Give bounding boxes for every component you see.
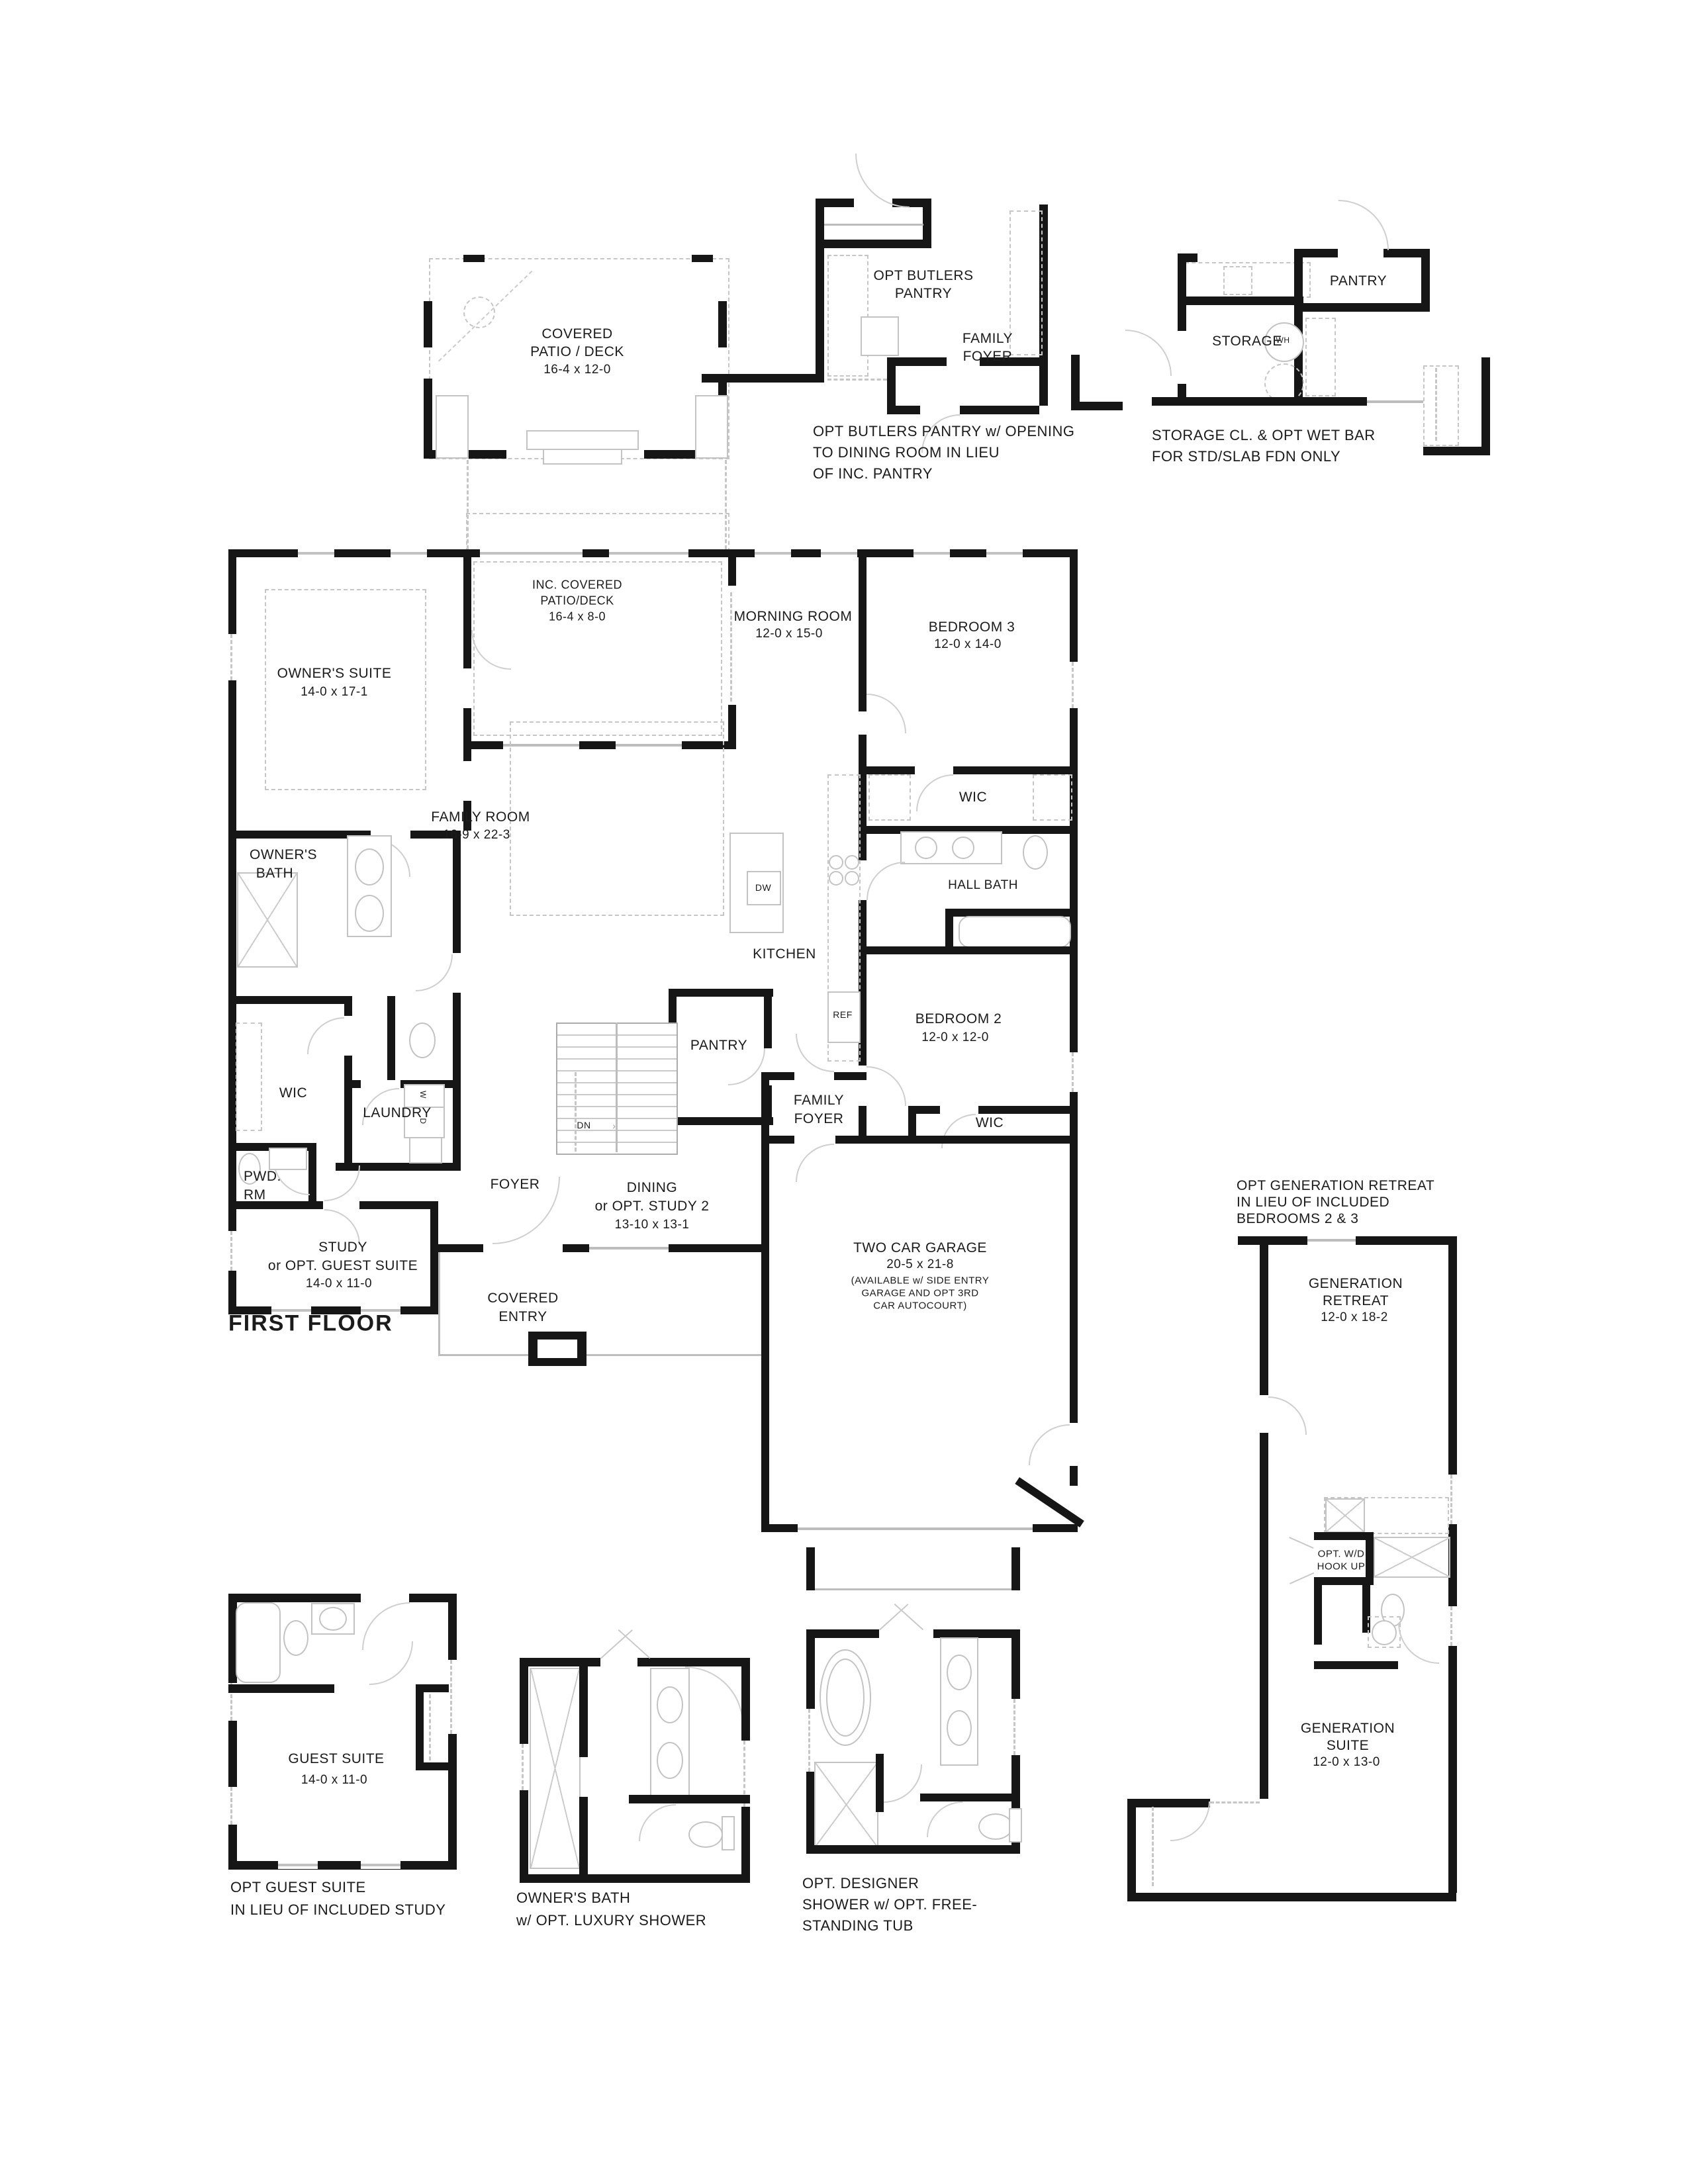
shower-hatch	[1325, 1498, 1365, 1533]
wall-segment	[728, 705, 736, 741]
stairs-down-label: DN	[577, 1120, 590, 1130]
wall-segment	[520, 1874, 750, 1883]
wall-segment	[887, 406, 920, 414]
wall-segment	[1070, 553, 1078, 662]
owners-suite-label: OWNER'S SUITE	[277, 666, 392, 682]
shower-hatch	[237, 872, 298, 968]
fixture	[409, 1137, 442, 1163]
wall-segment	[463, 708, 471, 741]
window-line	[589, 1247, 669, 1250]
generation-caption: BEDROOMS 2 & 3	[1237, 1211, 1358, 1227]
wall-segment	[1314, 1585, 1322, 1645]
owners-suite-dims: 14-0 x 17-1	[301, 685, 368, 700]
dashed-line	[450, 1660, 452, 1734]
wall-segment	[669, 989, 773, 997]
covered-entry-label: COVERED	[487, 1291, 558, 1306]
fixture	[829, 855, 843, 870]
study-label: or OPT. GUEST SUITE	[268, 1258, 418, 1274]
wall-segment	[908, 1106, 916, 1136]
wall-segment	[669, 1117, 773, 1125]
butlers-pantry-label: PANTRY	[895, 286, 952, 302]
wic-owner-label: WIC	[279, 1085, 307, 1101]
fixture	[355, 848, 384, 886]
dashed-outline	[1033, 774, 1072, 821]
dashed-line	[808, 1709, 810, 1772]
wall-segment	[835, 1136, 1078, 1144]
dashed-line	[429, 1694, 431, 1760]
fixture	[826, 1659, 865, 1737]
shower-hatch	[814, 1762, 878, 1848]
fixture	[947, 1655, 972, 1690]
generation-suite-dims: 12-0 x 13-0	[1313, 1755, 1380, 1770]
wd-hookup-label: OPT. W/D	[1318, 1549, 1365, 1560]
door-arc	[884, 1764, 922, 1803]
morning-room-label: MORNING ROOM	[734, 609, 853, 625]
wd-hookup-label: HOOK UP	[1317, 1561, 1366, 1572]
wall-segment	[859, 766, 915, 774]
fixture	[355, 895, 384, 932]
door-arc	[916, 774, 953, 811]
window-gap	[278, 1861, 318, 1869]
dashed-outline	[236, 1023, 262, 1131]
wall-segment	[228, 549, 236, 634]
wall-segment	[887, 357, 947, 366]
storage-caption: STORAGE CL. & OPT WET BAR	[1152, 427, 1376, 444]
water-heater-label: WH	[1276, 336, 1290, 345]
wall-segment	[764, 989, 772, 1048]
wall-segment	[424, 379, 432, 458]
wall-segment	[702, 374, 824, 383]
dashed-line	[1210, 1801, 1260, 1803]
wall-segment	[1070, 1466, 1078, 1486]
thin-line	[618, 1629, 651, 1659]
wall-segment	[1127, 1893, 1456, 1901]
dashed-line	[827, 379, 887, 381]
shower-hatch	[1374, 1537, 1450, 1578]
door-arc	[307, 1017, 344, 1054]
door-arc	[927, 1801, 962, 1837]
wall-segment	[859, 735, 867, 766]
wall-segment	[453, 1080, 461, 1171]
wall-segment	[448, 1594, 457, 1660]
wall-segment	[816, 248, 824, 382]
wall-segment	[761, 1524, 798, 1532]
guest-suite-dims: 14-0 x 11-0	[301, 1773, 367, 1788]
bedroom2-dims: 12-0 x 12-0	[921, 1030, 989, 1045]
wall-segment	[1178, 257, 1186, 331]
dashed-line	[575, 1072, 577, 1152]
dashed-line	[1450, 1475, 1452, 1524]
bedroom3-label: BEDROOM 3	[929, 619, 1015, 635]
wic-bed2-label: WIC	[976, 1115, 1004, 1131]
wall-segment	[1448, 1646, 1457, 1893]
door-arc	[796, 1034, 834, 1072]
wall-segment	[859, 946, 1078, 954]
inc-patio-label: INC. COVERED	[532, 578, 622, 592]
wall-segment	[953, 766, 1078, 774]
dashed-line	[725, 460, 727, 549]
dishwasher-label: DW	[755, 882, 771, 893]
window-line	[438, 1252, 440, 1355]
generation-retreat-label: GENERATION	[1309, 1276, 1403, 1292]
wall-segment	[359, 1201, 438, 1209]
dining-label: DINING	[627, 1180, 678, 1196]
window-gap	[914, 549, 950, 557]
wall-segment	[816, 240, 931, 248]
butlers-caption: OPT BUTLERS PANTRY w/ OPENING	[813, 423, 1075, 440]
wall-segment	[1260, 1433, 1268, 1799]
wall-segment	[960, 406, 1039, 414]
dashed-outline	[1009, 210, 1043, 355]
door-arc	[728, 1048, 765, 1085]
butlers-family-foyer-label: FOYER	[963, 349, 1013, 365]
wall-segment	[520, 1658, 528, 1744]
morning-room-dims: 12-0 x 15-0	[755, 627, 823, 641]
owners-bath-label: OWNER'S	[250, 847, 317, 863]
wall-segment	[1481, 357, 1490, 455]
wall-segment	[228, 996, 352, 1004]
stairs-down-arrow: ›	[612, 1120, 616, 1131]
thin-line	[600, 1629, 633, 1659]
garage-note: CAR AUTOCOURT)	[873, 1300, 966, 1312]
wall-segment	[728, 549, 736, 586]
generation-caption: OPT GENERATION RETREAT	[1237, 1178, 1434, 1194]
wall-segment	[448, 1734, 457, 1870]
window-gap	[298, 549, 334, 557]
dining-label: or OPT. STUDY 2	[595, 1199, 710, 1214]
window-line	[824, 224, 923, 226]
storage-label: STORAGE	[1212, 334, 1282, 349]
wall-segment	[637, 1658, 750, 1666]
wall-segment	[344, 1056, 352, 1163]
dashed-line	[1435, 368, 1437, 441]
window-gap	[609, 549, 688, 557]
wall-segment	[416, 1684, 449, 1692]
butlers-caption: TO DINING ROOM IN LIEU	[813, 444, 1000, 461]
garage-dims: 20-5 x 21-8	[886, 1257, 954, 1272]
fixture	[845, 871, 859, 886]
wall-segment	[1421, 249, 1430, 312]
pantry-label: PANTRY	[690, 1038, 747, 1054]
generation-caption: IN LIEU OF INCLUDED	[1237, 1195, 1389, 1210]
fixture	[947, 1710, 972, 1746]
fixture	[1009, 1808, 1022, 1843]
fixture	[526, 430, 639, 450]
wall-segment	[387, 996, 395, 1080]
generation-retreat-label: RETREAT	[1323, 1293, 1389, 1309]
wall-segment	[1356, 1236, 1456, 1245]
fixture	[1372, 1620, 1397, 1645]
page-title: FIRST FLOOR	[228, 1311, 393, 1337]
fixture	[915, 837, 937, 859]
wall-segment	[629, 1795, 750, 1803]
designer-shower-caption: OPT. DESIGNER	[802, 1875, 919, 1892]
dashed-outline	[1423, 365, 1459, 446]
guest-suite-caption: IN LIEU OF INCLUDED STUDY	[230, 1901, 445, 1919]
wall-segment	[945, 909, 953, 946]
wall-segment	[430, 1201, 438, 1314]
covered-patio-dims: 16-4 x 12-0	[543, 363, 611, 377]
butlers-pantry-label: OPT BUTLERS	[874, 268, 974, 284]
door-arc	[1398, 1623, 1439, 1664]
generation-suite-label: SUITE	[1327, 1738, 1369, 1754]
wall-segment	[876, 1754, 884, 1812]
wall-segment	[416, 1762, 449, 1770]
covered-entry-label: ENTRY	[498, 1309, 547, 1325]
dashed-line	[230, 1787, 232, 1825]
butlers-family-foyer-label: FAMILY	[962, 331, 1013, 347]
wall-segment	[463, 549, 471, 668]
dashed-outline	[827, 255, 868, 377]
wall-segment	[1314, 1577, 1374, 1585]
fixture	[283, 1620, 308, 1656]
dashed-outline	[466, 513, 729, 552]
wall-segment	[520, 1658, 600, 1666]
wall-segment	[834, 1072, 867, 1080]
entry-step	[538, 1340, 577, 1358]
dashed-outline	[510, 721, 724, 916]
window-gap	[821, 549, 857, 557]
dashed-line	[730, 592, 732, 702]
foyer-label: FOYER	[491, 1177, 540, 1193]
thin-line	[879, 1604, 908, 1630]
wall-segment	[228, 1201, 323, 1209]
wall-segment	[1152, 397, 1367, 406]
fixture	[269, 1148, 307, 1170]
garage-label: TWO CAR GARAGE	[853, 1240, 987, 1256]
wall-segment	[520, 1790, 528, 1883]
wall-segment	[453, 993, 461, 1080]
wall-segment	[1294, 303, 1430, 312]
owners-bath-caption: w/ OPT. LUXURY SHOWER	[516, 1912, 706, 1929]
covered-patio-label: COVERED	[541, 326, 612, 342]
wall-segment	[1423, 447, 1489, 455]
door-arc	[324, 1165, 360, 1201]
wall-segment	[859, 553, 867, 711]
thin-line	[894, 1604, 923, 1630]
dining-dims: 13-10 x 13-1	[615, 1218, 690, 1232]
butlers-caption: OF INC. PANTRY	[813, 465, 933, 482]
powder-room-label: PWD.	[244, 1169, 281, 1185]
door-arc	[1338, 200, 1389, 250]
window-gap	[755, 549, 791, 557]
wall-segment	[806, 1629, 879, 1638]
fixture	[543, 449, 622, 465]
kitchen-label: KITCHEN	[753, 946, 816, 962]
fixture	[978, 1813, 1013, 1840]
door-arc	[855, 154, 910, 208]
wall-segment	[859, 1106, 867, 1136]
door-arc	[1029, 1424, 1070, 1465]
window-line	[815, 1588, 1011, 1590]
guest-suite-label: GUEST SUITE	[288, 1751, 384, 1767]
dashed-outline	[1223, 266, 1252, 295]
family-foyer-label: FOYER	[794, 1111, 844, 1127]
garage-note: GARAGE AND OPT 3RD	[861, 1288, 978, 1299]
door-arc	[685, 1666, 743, 1725]
wall-segment	[718, 301, 727, 347]
window-gap	[361, 1861, 400, 1869]
door-arc	[1268, 1396, 1307, 1435]
dashed-line	[1072, 1052, 1074, 1092]
window-line	[1307, 1239, 1356, 1242]
door-arc	[639, 1804, 676, 1841]
window-gap	[986, 549, 1023, 557]
fixture	[952, 837, 974, 859]
fixture	[657, 1742, 683, 1779]
wall-segment	[579, 1797, 588, 1874]
dashed-line	[522, 1744, 524, 1790]
dashed-line	[230, 634, 232, 680]
dashed-outline	[1305, 318, 1336, 396]
wall-segment	[228, 1861, 457, 1870]
door-arc	[867, 1066, 906, 1106]
wall-segment	[1448, 1236, 1457, 1475]
inc-patio-dims: 16-4 x 8-0	[549, 610, 606, 624]
refrigerator-label: REF	[833, 1009, 853, 1020]
wall-segment	[1011, 1547, 1020, 1590]
door-arc	[369, 1641, 413, 1685]
door-arc	[867, 694, 906, 733]
wall-segment	[1127, 1799, 1136, 1893]
dashed-line	[1013, 1699, 1015, 1755]
wall-segment	[1071, 402, 1123, 410]
dashed-line	[1450, 1606, 1452, 1646]
fixture	[959, 916, 1071, 948]
wall-segment	[761, 1136, 794, 1144]
wall-segment	[344, 1080, 361, 1088]
window-line	[1367, 400, 1423, 403]
wall-segment	[761, 1144, 769, 1524]
wall-segment	[438, 1244, 483, 1252]
fixture	[657, 1686, 683, 1723]
wall-segment	[228, 1721, 237, 1787]
wall-segment	[1314, 1532, 1374, 1540]
wall-segment	[453, 831, 461, 953]
wall-segment	[228, 1594, 361, 1602]
window-gap	[480, 549, 583, 557]
wall-segment	[1238, 1236, 1307, 1245]
wall-segment	[978, 1106, 1078, 1114]
garage-note: (AVAILABLE w/ SIDE ENTRY	[851, 1275, 990, 1287]
door-arc	[796, 1144, 834, 1182]
dryer-label: D	[418, 1118, 428, 1124]
fixture	[829, 871, 843, 886]
wall-segment	[424, 301, 432, 347]
family-foyer-label: FAMILY	[794, 1093, 844, 1109]
fixture	[236, 1602, 281, 1683]
family-room-dims: 16-9 x 22-3	[443, 828, 510, 842]
bedroom3-dims: 12-0 x 14-0	[934, 637, 1002, 652]
door-arc	[867, 862, 905, 900]
covered-patio-label: PATIO / DECK	[530, 344, 624, 360]
dashed-line	[1152, 1807, 1154, 1886]
wall-segment	[761, 1072, 769, 1136]
generation-suite-label: GENERATION	[1301, 1721, 1395, 1737]
storage-caption: FOR STD/SLAB FDN ONLY	[1152, 448, 1340, 465]
generation-retreat-dims: 12-0 x 18-2	[1321, 1310, 1388, 1325]
fixture	[861, 316, 899, 356]
fixture	[409, 1023, 436, 1058]
guest-suite-caption: OPT GUEST SUITE	[230, 1879, 366, 1896]
wall-segment	[463, 255, 485, 262]
dashed-line	[467, 460, 469, 549]
wall-segment	[579, 1658, 588, 1757]
washer-label: W	[418, 1091, 428, 1099]
fixture	[436, 395, 469, 459]
wall-segment	[416, 1684, 424, 1770]
designer-shower-caption: SHOWER w/ OPT. FREE-	[802, 1896, 977, 1913]
wall-segment	[806, 1845, 1020, 1854]
door-arc	[416, 954, 453, 991]
wall-segment	[806, 1547, 815, 1590]
wic-bed3-label: WIC	[959, 790, 987, 805]
wall-segment	[228, 1684, 334, 1693]
designer-shower-caption: STANDING TUB	[802, 1917, 914, 1934]
wall-segment	[920, 1794, 1020, 1801]
powder-room-label: RM	[244, 1187, 266, 1203]
wall-segment	[463, 741, 503, 749]
window-line	[438, 1354, 761, 1356]
owners-bath-label: BATH	[256, 866, 293, 882]
wall-segment	[228, 1271, 236, 1306]
family-room-label: FAMILY ROOM	[431, 809, 530, 825]
dashed-line	[230, 1231, 232, 1271]
window-gap	[391, 549, 427, 557]
inc-patio-label: PATIO/DECK	[540, 594, 614, 608]
shower-hatch	[530, 1668, 581, 1869]
thin-line	[1289, 1572, 1314, 1584]
hall-bath-label: HALL BATH	[948, 878, 1018, 893]
wall-segment	[1294, 249, 1303, 312]
fixture	[722, 1816, 735, 1850]
window-line	[616, 1023, 618, 1152]
study-label: STUDY	[318, 1240, 367, 1255]
owners-bath-caption: OWNER'S BATH	[516, 1889, 630, 1907]
thin-line	[1289, 1537, 1313, 1549]
door-arc	[1125, 330, 1172, 376]
dashed-line	[1072, 662, 1074, 708]
wall-segment	[563, 1244, 589, 1252]
wall-segment	[806, 1629, 815, 1709]
dashed-outline	[868, 774, 911, 821]
fixture	[695, 395, 728, 459]
wall-segment	[1178, 296, 1303, 305]
fixture	[319, 1607, 347, 1631]
wall-segment	[692, 255, 713, 262]
wall-segment	[1260, 1236, 1268, 1395]
fixture	[688, 1821, 723, 1848]
bedroom2-label: BEDROOM 2	[915, 1011, 1002, 1027]
wall-segment	[1070, 708, 1078, 1052]
storage-pantry-label: PANTRY	[1330, 273, 1387, 289]
wall-segment	[669, 1244, 761, 1252]
wall-segment	[741, 1807, 750, 1883]
wall-segment	[1314, 1661, 1398, 1669]
fixture	[1023, 835, 1048, 870]
window-line	[798, 1527, 1033, 1530]
fixture	[845, 855, 859, 870]
wall-segment	[344, 996, 352, 1016]
wall-segment	[741, 1658, 750, 1741]
door-arc	[1170, 1801, 1210, 1841]
wall-segment	[1033, 1524, 1078, 1532]
dashed-outline	[463, 296, 495, 328]
study-dims: 14-0 x 11-0	[306, 1277, 372, 1291]
floor-plan-sheet: COVERED PATIO / DECK 16-4 x 12-0 OPT BUT…	[0, 0, 1688, 2184]
wall-segment	[1011, 1629, 1020, 1699]
